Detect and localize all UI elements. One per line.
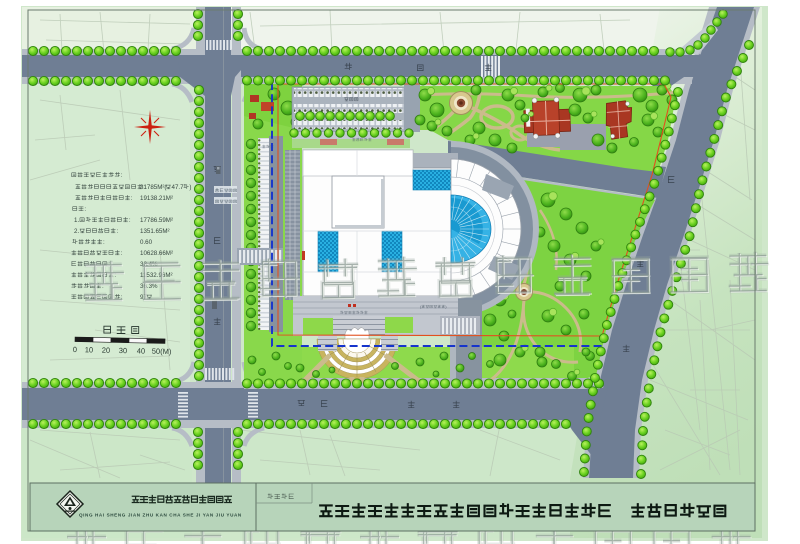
svg-text::: : — [121, 250, 123, 257]
svg-text:19138.21M²: 19138.21M² — [140, 195, 173, 202]
svg-text:0.60: 0.60 — [140, 239, 153, 246]
svg-text::: : — [131, 195, 133, 202]
svg-text::: : — [117, 228, 119, 235]
svg-text:1351.65M²: 1351.65M² — [140, 228, 170, 235]
svg-text:1.: 1. — [74, 217, 79, 224]
svg-text:17786.59M²: 17786.59M² — [140, 217, 173, 224]
svg-text::: : — [129, 217, 131, 224]
svg-text::: : — [84, 206, 86, 213]
svg-text:50(M): 50(M) — [152, 347, 172, 356]
svg-text:10: 10 — [85, 345, 94, 354]
svg-text:QING HAI SHENG JIAN ZHU KAN CH: QING HAI SHENG JIAN ZHU KAN CHA SHE JI Y… — [79, 513, 242, 518]
svg-text:): ) — [189, 184, 191, 191]
svg-text:47.7: 47.7 — [172, 184, 185, 191]
svg-text::: : — [121, 172, 123, 179]
svg-text:31785M²(: 31785M²( — [140, 184, 167, 191]
svg-text:0: 0 — [73, 345, 77, 354]
svg-text:10628.66M²: 10628.66M² — [140, 250, 173, 257]
svg-text:2.: 2. — [74, 228, 79, 235]
svg-text::: : — [103, 239, 105, 246]
svg-text:20: 20 — [102, 346, 111, 355]
svg-text:30: 30 — [119, 346, 128, 355]
svg-text:40: 40 — [137, 346, 146, 355]
